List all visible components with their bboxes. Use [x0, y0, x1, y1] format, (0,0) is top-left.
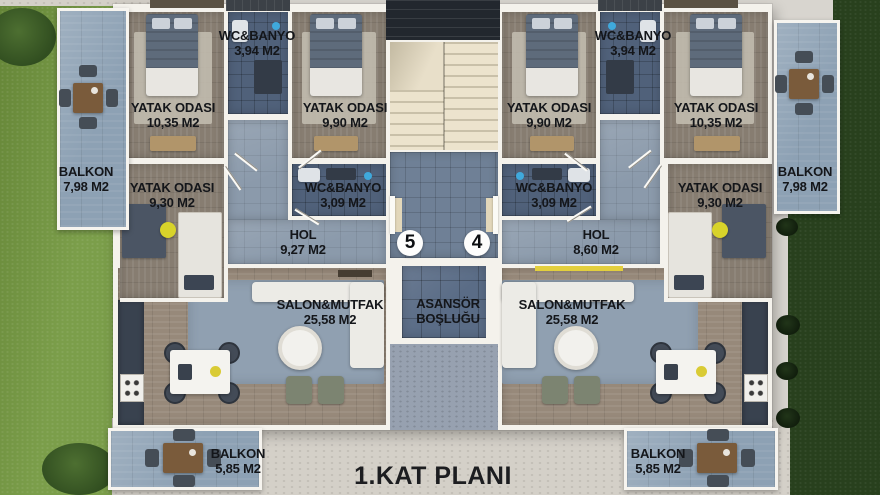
staircase: [390, 42, 498, 150]
room-name: WC&BANYO: [494, 180, 614, 195]
pillow: [718, 18, 736, 29]
room-name: YATAK ODASI: [489, 100, 609, 115]
pillow: [152, 18, 170, 29]
room-area: 3,09 M2: [283, 195, 403, 210]
stair-flight-right: [444, 42, 498, 150]
armchair: [286, 376, 312, 404]
elevator-label-line1: ASANSÖR: [384, 296, 512, 311]
room-area: 3,94 M2: [573, 43, 693, 58]
stove: [120, 374, 144, 402]
double-bed: [310, 14, 362, 96]
room-name: SALON&MUTFAK: [260, 297, 400, 312]
balcony-chair: [775, 75, 787, 93]
room-name: YATAK ODASI: [656, 100, 776, 115]
room-area: 9,90 M2: [489, 115, 609, 130]
kitchen-counter: [118, 300, 144, 425]
balcony-chair: [707, 475, 729, 487]
bush: [776, 408, 800, 428]
kitchen-counter: [742, 300, 768, 425]
room-name: BALKON: [186, 446, 290, 461]
cup: [91, 87, 98, 94]
bed-bench: [530, 136, 574, 151]
tableware: [178, 364, 192, 380]
pillow: [674, 275, 704, 290]
balcony-table: [73, 83, 103, 113]
balcony-chair: [79, 65, 97, 77]
roof-strip: [664, 0, 738, 8]
dining-table: [656, 350, 716, 394]
balcony-chair: [741, 449, 755, 467]
double-bed: [690, 14, 742, 96]
room-area: 9,30 M2: [112, 195, 232, 210]
bathroom-vanity: [254, 60, 282, 94]
duvet: [526, 68, 578, 96]
room-name: WC&BANYO: [573, 28, 693, 43]
room-area: 3,94 M2: [197, 43, 317, 58]
room-area: 7,98 M2: [755, 179, 855, 194]
armchair: [318, 376, 344, 404]
pillow: [554, 18, 572, 29]
room-name: WC&BANYO: [197, 28, 317, 43]
single-bed: [668, 212, 712, 298]
bush: [42, 443, 116, 495]
room-label-hall-left: HOL 9,27 M2: [243, 227, 363, 258]
room-area: 25,58 M2: [502, 312, 642, 327]
bathroom-vanity: [532, 168, 562, 180]
roof-strip: [150, 0, 224, 8]
armchair: [542, 376, 568, 404]
room-name: WC&BANYO: [283, 180, 403, 195]
room-area: 9,90 M2: [285, 115, 405, 130]
plan-title: 1.KAT PLANI: [303, 462, 563, 491]
duvet: [310, 68, 362, 96]
bed-bench: [150, 136, 196, 151]
balcony-table: [789, 69, 819, 99]
coffee-table: [554, 326, 598, 370]
room-label-balcony-bottom-right: BALKON 5,85 M2: [606, 446, 710, 477]
room-area: 25,58 M2: [260, 312, 400, 327]
single-bed: [178, 212, 222, 298]
desk: [722, 204, 766, 258]
room-area: 8,60 M2: [536, 242, 656, 257]
room-label-bathroom-left-309: WC&BANYO 3,09 M2: [283, 180, 403, 211]
balcony-chair: [145, 449, 159, 467]
room-area: 9,30 M2: [660, 195, 780, 210]
room-name: SALON&MUTFAK: [502, 297, 642, 312]
balcony-chair: [707, 429, 729, 441]
double-bed: [526, 14, 578, 96]
room-area: 10,35 M2: [113, 115, 233, 130]
entry-path: [390, 344, 498, 430]
room-area: 10,35 M2: [656, 115, 776, 130]
fruit-bowl: [210, 366, 221, 377]
room-name: BALKON: [606, 446, 710, 461]
bush: [776, 362, 798, 380]
balcony-chair: [173, 475, 195, 487]
room-area: 5,85 M2: [606, 461, 710, 476]
tv-console: [338, 270, 372, 277]
stairwell-roof: [386, 0, 500, 40]
balcony-chair: [59, 89, 71, 107]
room-label-elevator-shaft: ASANSÖR BOŞLUĞU: [384, 296, 512, 327]
room-area: 7,98 M2: [36, 179, 136, 194]
room-label-bathroom-left-394: WC&BANYO 3,94 M2: [197, 28, 317, 59]
room-label-balcony-left: BALKON 7,98 M2: [36, 164, 136, 195]
room-name: HOL: [536, 227, 656, 242]
pillow: [184, 275, 214, 290]
room-area: 5,85 M2: [186, 461, 290, 476]
dining-table: [170, 350, 230, 394]
duvet: [146, 68, 198, 96]
room-label-bathroom-right-394: WC&BANYO 3,94 M2: [573, 28, 693, 59]
cup: [723, 449, 730, 456]
balcony-chair: [173, 429, 195, 441]
room-label-livingroom-left: SALON&MUTFAK 25,58 M2: [260, 297, 400, 328]
floor-plan-canvas: 5 4: [0, 0, 880, 495]
desk-chair-yellow: [712, 222, 728, 238]
stair-landing: [390, 42, 444, 90]
room-name: YATAK ODASI: [113, 100, 233, 115]
balcony-chair: [79, 117, 97, 129]
roof-deck: [226, 0, 290, 11]
room-name: BALKON: [755, 164, 855, 179]
room-name: BALKON: [36, 164, 136, 179]
cup: [807, 73, 814, 80]
towel: [516, 172, 524, 180]
bathroom-vanity: [606, 60, 634, 94]
bed-bench: [314, 136, 358, 151]
bed-bench: [694, 136, 740, 151]
room-label-balcony-right: BALKON 7,98 M2: [755, 164, 855, 195]
room-label-bedroom-left-990: YATAK ODASI 9,90 M2: [285, 100, 405, 131]
stair-divider: [443, 42, 445, 150]
double-bed: [146, 14, 198, 96]
room-label-livingroom-right: SALON&MUTFAK 25,58 M2: [502, 297, 642, 328]
roof-deck: [598, 0, 662, 11]
stove: [744, 374, 768, 402]
room-label-bedroom-right-1035: YATAK ODASI 10,35 M2: [656, 100, 776, 131]
pillow: [316, 18, 334, 29]
pillow: [532, 18, 550, 29]
balcony-chair: [822, 75, 834, 93]
room-label-hall-right: HOL 8,60 M2: [536, 227, 656, 258]
room-area: 3,09 M2: [494, 195, 614, 210]
armchair: [574, 376, 600, 404]
bathroom-vanity: [326, 168, 356, 180]
bush: [776, 315, 800, 335]
room-name: HOL: [243, 227, 363, 242]
pillow: [174, 18, 192, 29]
elevator-label-line2: BOŞLUĞU: [384, 311, 512, 326]
grass-right-bottom: [788, 205, 880, 495]
room-label-balcony-bottom-left: BALKON 5,85 M2: [186, 446, 290, 477]
balcony-chair: [795, 51, 813, 63]
hall-corridor-left: [228, 120, 288, 220]
unit-number-badge-right: 4: [464, 230, 490, 256]
yellow-sill: [535, 266, 623, 271]
pillow: [696, 18, 714, 29]
room-label-bedroom-left-1035: YATAK ODASI 10,35 M2: [113, 100, 233, 131]
desk-chair-yellow: [160, 222, 176, 238]
duvet: [690, 68, 742, 96]
tableware: [664, 364, 678, 380]
room-label-bathroom-right-309: WC&BANYO 3,09 M2: [494, 180, 614, 211]
fruit-bowl: [696, 366, 707, 377]
towel: [364, 172, 372, 180]
room-area: 9,27 M2: [243, 242, 363, 257]
room-name: YATAK ODASI: [285, 100, 405, 115]
pillow: [338, 18, 356, 29]
bush: [776, 218, 798, 236]
balcony-chair: [795, 103, 813, 115]
room-label-bedroom-right-990: YATAK ODASI 9,90 M2: [489, 100, 609, 131]
unit-number-badge-left: 5: [397, 230, 423, 256]
coffee-table: [278, 326, 322, 370]
